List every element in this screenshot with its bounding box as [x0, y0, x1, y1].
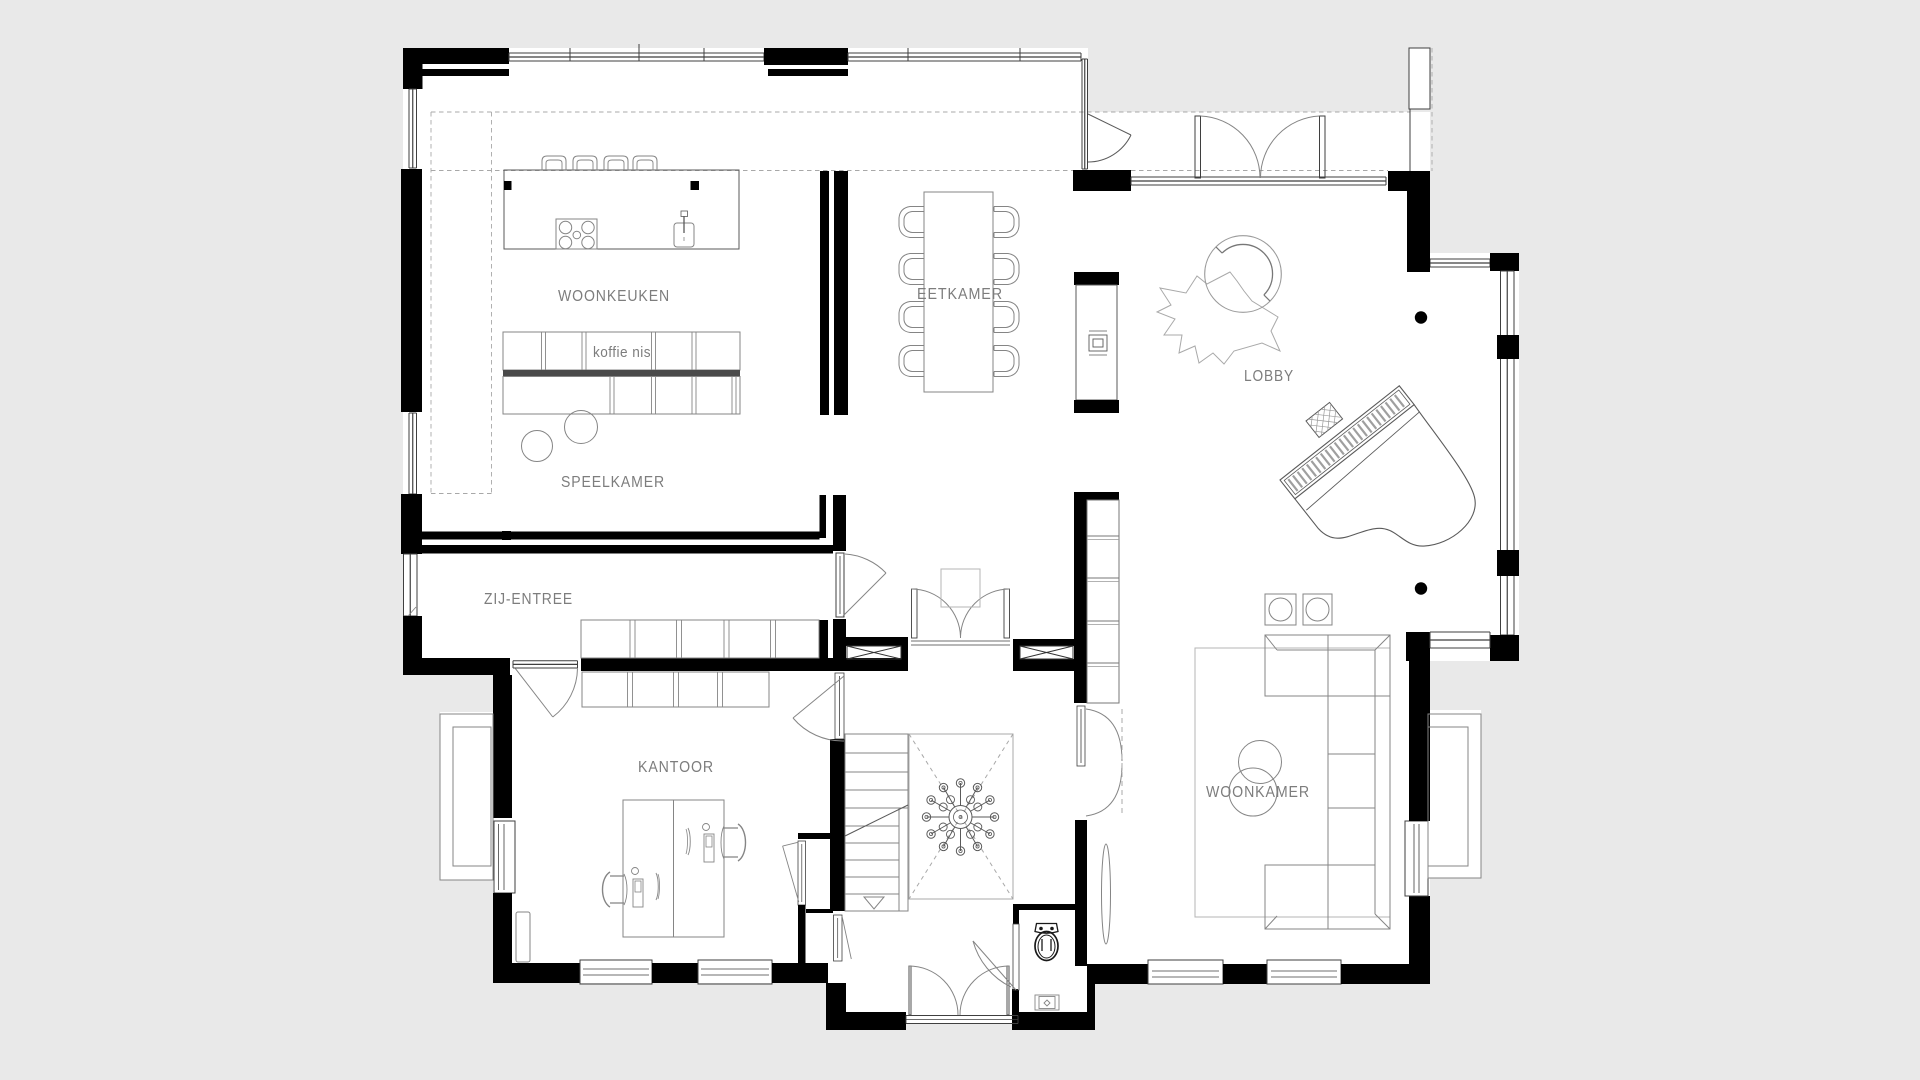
svg-text:ZIJ-ENTREE: ZIJ-ENTREE — [484, 591, 573, 608]
svg-text:EETKAMER: EETKAMER — [917, 286, 1003, 303]
svg-text:WOONKAMER: WOONKAMER — [1206, 784, 1310, 801]
svg-text:WOONKEUKEN: WOONKEUKEN — [558, 288, 670, 305]
svg-text:koffie nis: koffie nis — [593, 344, 651, 361]
svg-text:KANTOOR: KANTOOR — [638, 759, 714, 776]
svg-text:SPEELKAMER: SPEELKAMER — [561, 474, 665, 491]
svg-text:LOBBY: LOBBY — [1244, 368, 1294, 385]
